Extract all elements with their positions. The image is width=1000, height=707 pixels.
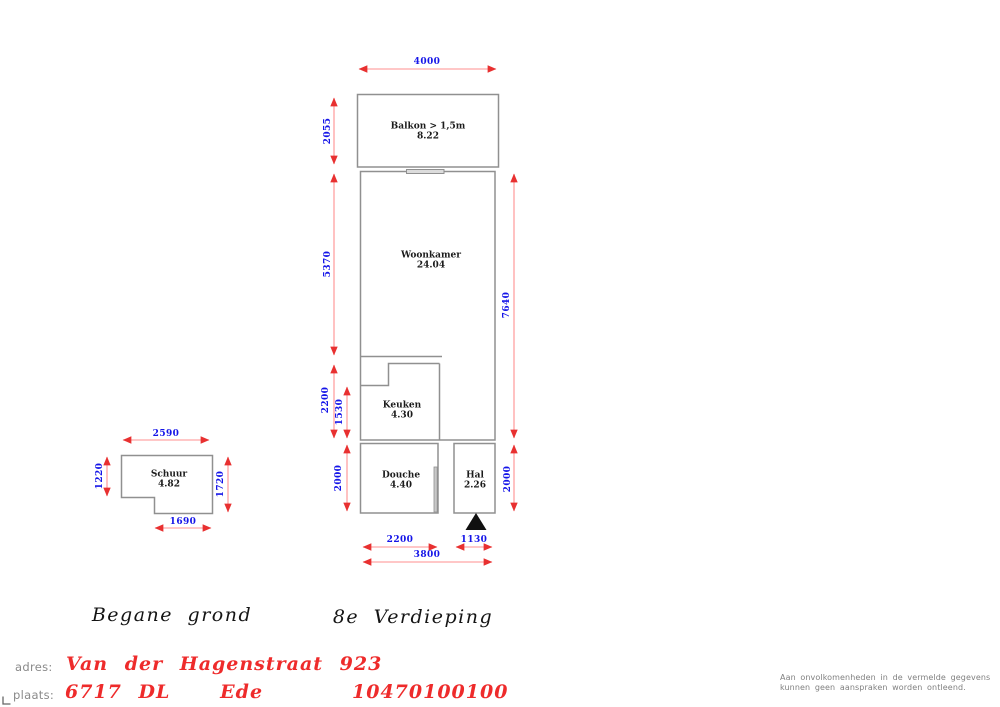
dim-label-total-width: 3800: [414, 550, 441, 560]
ground-floor-title: Begane grond: [92, 604, 252, 626]
room-area: 4.30: [383, 411, 421, 421]
adres-value: Van der Hagenstraat 923: [66, 653, 382, 675]
douche-door-icon: [434, 467, 437, 512]
room-area: 4.40: [382, 481, 420, 491]
dim-label-keuken-height: 2200: [321, 387, 331, 414]
room-label-hal: Hal 2.26: [464, 472, 486, 491]
reference-number: 10470100100: [352, 681, 508, 703]
room-label-woonkamer: Woonkamer 24.04: [401, 252, 461, 271]
entrance-arrow-icon: [466, 513, 487, 530]
dim-label-douche-width: 2200: [387, 535, 414, 545]
disclaimer-line2: kunnen geen aanspraken worden ontleend.: [780, 683, 966, 693]
floorplan-page: 4000 2055 5370 7640 2200 1530 2000 2000 …: [0, 0, 1000, 707]
room-area: 2.26: [464, 481, 486, 491]
adres-label: adres:: [15, 660, 53, 674]
dim-label-keuken-inner: 1530: [335, 399, 345, 426]
dim-label-balkon-height: 2055: [323, 118, 333, 145]
room-outline-woonkamer: [361, 172, 496, 441]
room-label-keuken: Keuken 4.30: [383, 402, 421, 421]
dim-label-schuur-left: 1220: [95, 463, 105, 490]
room-label-douche: Douche 4.40: [382, 472, 420, 491]
page-corner-mark: [3, 697, 11, 705]
room-label-balkon: Balkon > 1,5m 8.22: [391, 123, 466, 142]
dim-label-schuur-bottom: 1690: [170, 517, 197, 527]
room-area: 8.22: [391, 132, 466, 142]
disclaimer-line1: Aan onvolkomenheden in de vermelde gegev…: [780, 673, 990, 683]
dim-label-schuur-right: 1720: [216, 471, 226, 498]
dim-label-right-height: 7640: [502, 292, 512, 319]
room-area: 24.04: [401, 261, 461, 271]
balcony-door-icon: [407, 170, 445, 174]
room-label-schuur: Schuur 4.82: [151, 471, 187, 490]
room-area: 4.82: [151, 480, 187, 490]
dim-label-top-width: 4000: [414, 57, 441, 67]
dim-label-schuur-top: 2590: [153, 429, 180, 439]
dim-label-hal-height: 2000: [503, 466, 513, 493]
plaats-value: 6717 DL Ede: [65, 681, 263, 703]
walls-floor8: [358, 95, 499, 514]
dim-label-woonkamer-height: 5370: [323, 251, 333, 278]
dim-label-hal-width: 1130: [461, 535, 488, 545]
plaats-label: plaats:: [13, 688, 54, 702]
floorplan-canvas: [0, 0, 1000, 707]
dim-label-douche-height: 2000: [334, 465, 344, 492]
floor8-title: 8e Verdieping: [333, 606, 493, 628]
